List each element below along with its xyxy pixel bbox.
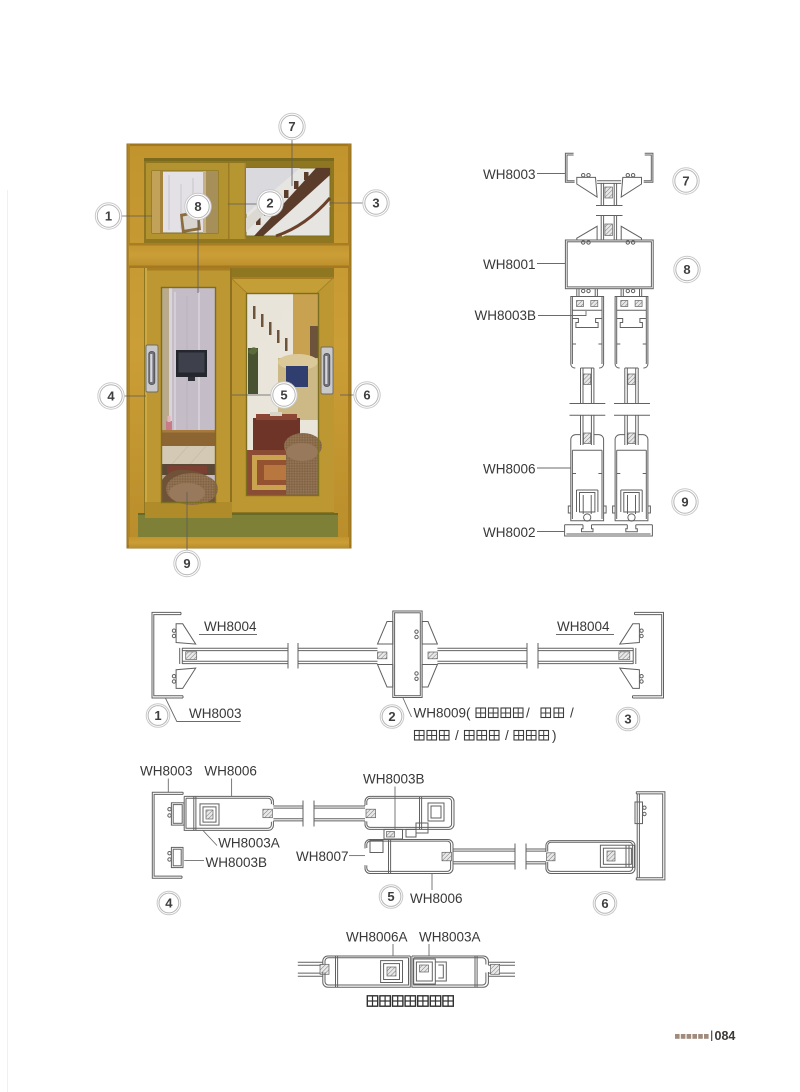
svg-text:WH8004: WH8004 — [557, 619, 610, 634]
svg-text:7: 7 — [682, 174, 689, 189]
svg-text:4: 4 — [165, 896, 173, 911]
svg-text:WH8003A: WH8003A — [218, 836, 280, 851]
svg-text:WH8003B: WH8003B — [206, 855, 268, 870]
svg-text:9: 9 — [183, 556, 190, 571]
svg-text:3: 3 — [372, 196, 379, 211]
svg-text:WH8007: WH8007 — [296, 849, 349, 864]
svg-text:/: / — [570, 706, 574, 721]
svg-text:6: 6 — [601, 896, 608, 911]
svg-text:WH8003: WH8003 — [140, 764, 193, 779]
svg-text:1: 1 — [154, 708, 161, 723]
svg-text:WH8003: WH8003 — [483, 167, 536, 182]
svg-text:2: 2 — [388, 709, 395, 724]
svg-text:2: 2 — [266, 196, 273, 211]
svg-text:/: / — [455, 728, 459, 743]
svg-text:9: 9 — [681, 495, 688, 510]
svg-text:WH8006: WH8006 — [204, 764, 257, 779]
svg-text:4: 4 — [107, 389, 115, 404]
svg-text:8: 8 — [194, 199, 201, 214]
svg-text:WH8003B: WH8003B — [363, 772, 425, 787]
svg-text:5: 5 — [387, 889, 394, 904]
svg-text:/: / — [505, 728, 509, 743]
svg-text:WH8006: WH8006 — [483, 462, 536, 477]
svg-text:/: / — [526, 706, 530, 721]
svg-text:8: 8 — [683, 262, 690, 277]
svg-text:WH8009(: WH8009( — [414, 706, 472, 721]
svg-text:WH8003B: WH8003B — [474, 308, 536, 323]
svg-text:5: 5 — [280, 388, 287, 403]
svg-text:WH8003: WH8003 — [189, 706, 242, 721]
svg-text:): ) — [552, 728, 557, 743]
svg-text:WH8002: WH8002 — [483, 525, 536, 540]
svg-text:6: 6 — [363, 388, 370, 403]
svg-text:WH8006A: WH8006A — [346, 930, 408, 945]
svg-text:1: 1 — [105, 209, 112, 224]
svg-text:WH8003A: WH8003A — [419, 930, 481, 945]
svg-text:084: 084 — [715, 1029, 736, 1043]
svg-text:WH8004: WH8004 — [204, 619, 257, 634]
svg-text:WH8006: WH8006 — [410, 891, 463, 906]
svg-text:3: 3 — [624, 712, 631, 727]
svg-text:7: 7 — [288, 119, 295, 134]
svg-text:WH8001: WH8001 — [483, 257, 536, 272]
